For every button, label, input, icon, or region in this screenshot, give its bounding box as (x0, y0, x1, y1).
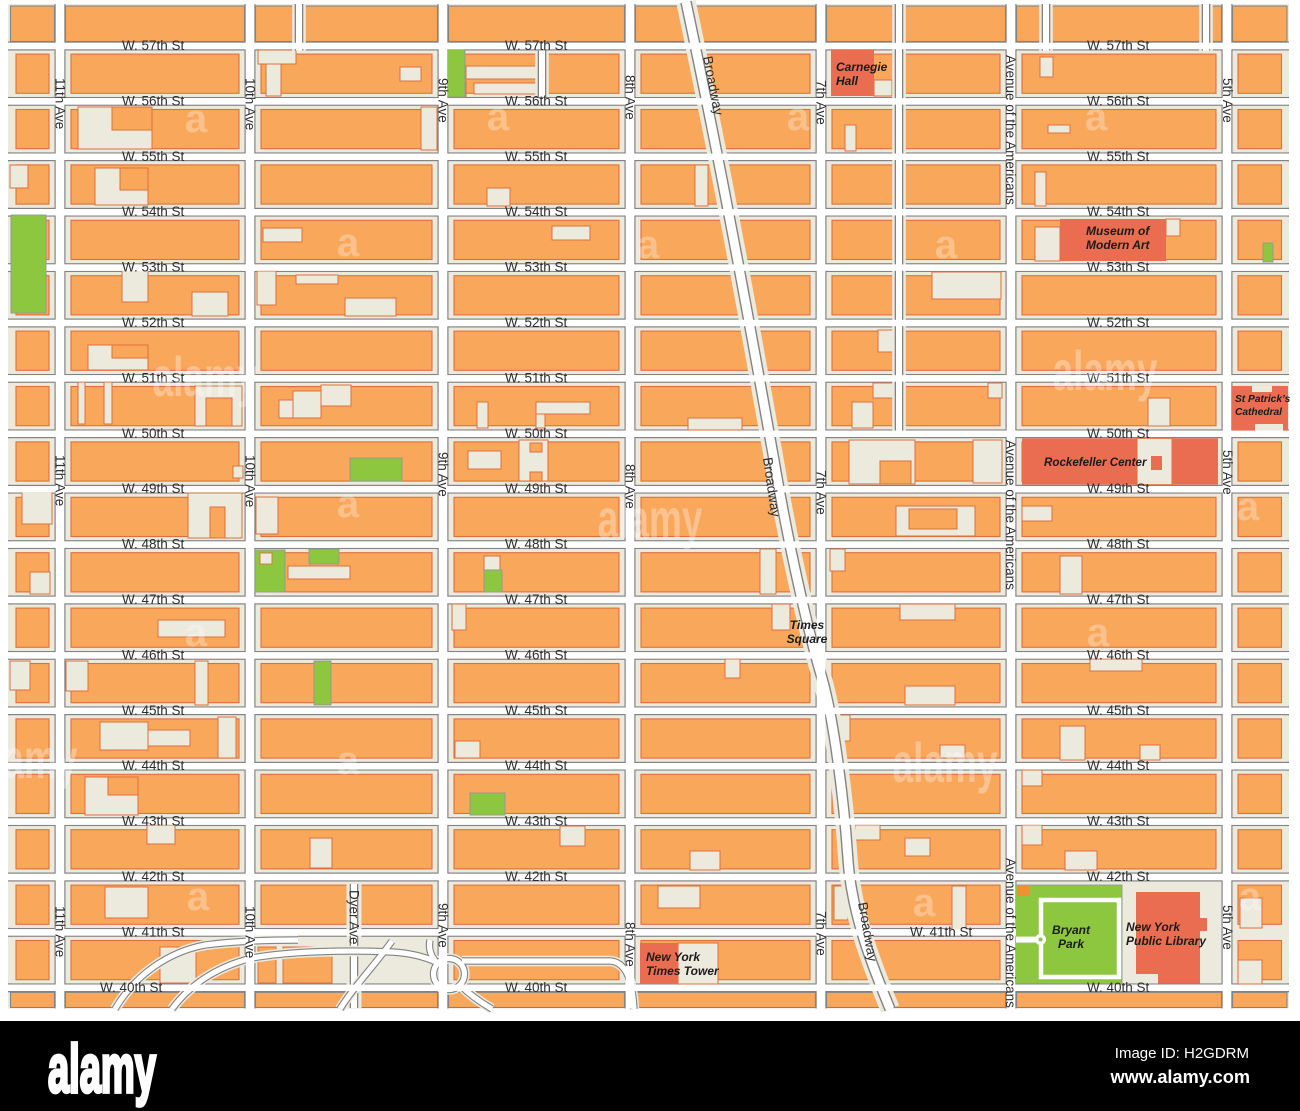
svg-text:W. 51th St: W. 51th St (505, 370, 568, 385)
svg-text:W. 52th St: W. 52th St (122, 315, 185, 330)
svg-text:W. 42th St: W. 42th St (505, 869, 568, 884)
svg-text:Dyer Ave: Dyer Ave (347, 890, 362, 945)
svg-text:alamy: alamy (48, 1030, 156, 1107)
svg-text:W. 53th St: W. 53th St (122, 260, 185, 275)
svg-text:W. 50th St: W. 50th St (122, 426, 185, 441)
svg-text:Bryant: Bryant (1052, 923, 1091, 937)
svg-text:W. 46th St: W. 46th St (505, 647, 568, 662)
svg-text:W. 48th St: W. 48th St (505, 537, 568, 552)
svg-text:W. 57th St: W. 57th St (122, 38, 185, 53)
svg-text:W. 50th St: W. 50th St (505, 426, 568, 441)
svg-text:W. 55th St: W. 55th St (505, 149, 568, 164)
svg-text:9th Ave: 9th Ave (436, 903, 451, 948)
svg-text:W. 56th St: W. 56th St (122, 93, 185, 108)
svg-text:W. 54th St: W. 54th St (1087, 204, 1150, 219)
svg-text:W. 44th St: W. 44th St (505, 758, 568, 773)
svg-text:11th Ave: 11th Ave (53, 455, 68, 506)
svg-text:Square: Square (787, 632, 828, 646)
svg-text:W. 52th St: W. 52th St (505, 315, 568, 330)
svg-text:Cathedral: Cathedral (1235, 407, 1282, 418)
svg-text:Times: Times (790, 618, 825, 632)
svg-text:Avenue of the Americans: Avenue of the Americans (1003, 55, 1018, 205)
svg-text:W. 46th St: W. 46th St (122, 647, 185, 662)
svg-text:W. 40th St: W. 40th St (505, 980, 568, 995)
svg-text:W. 45th St: W. 45th St (122, 703, 185, 718)
svg-text:Avenue of the Americans: Avenue of the Americans (1003, 440, 1018, 590)
svg-text:8th Ave: 8th Ave (623, 922, 638, 967)
svg-text:Image ID: H2GDRM: Image ID: H2GDRM (1115, 1045, 1249, 1062)
svg-text:W. 53th St: W. 53th St (505, 260, 568, 275)
svg-text:9th Ave: 9th Ave (436, 78, 451, 123)
svg-text:a: a (487, 95, 510, 139)
svg-text:7th Ave: 7th Ave (814, 470, 829, 515)
svg-text:W. 54th St: W. 54th St (505, 204, 568, 219)
svg-text:9th Ave: 9th Ave (436, 452, 451, 497)
svg-text:Hall: Hall (836, 74, 859, 88)
svg-text:a: a (913, 881, 936, 925)
svg-text:W. 41th St: W. 41th St (910, 924, 973, 939)
svg-text:Times Tower: Times Tower (646, 964, 720, 978)
svg-text:7th Ave: 7th Ave (814, 80, 829, 125)
svg-text:5th Ave: 5th Ave (1220, 78, 1235, 123)
svg-text:W. 49th St: W. 49th St (122, 481, 185, 496)
svg-text:New York: New York (1126, 920, 1181, 934)
svg-text:alamy: alamy (598, 488, 703, 551)
svg-text:W. 55th St: W. 55th St (122, 149, 185, 164)
svg-text:10th Ave: 10th Ave (243, 455, 258, 507)
svg-text:11th Ave: 11th Ave (53, 78, 68, 129)
svg-text:alamy: alamy (153, 346, 258, 409)
svg-text:Carnegie: Carnegie (836, 60, 888, 74)
svg-text:W. 54th St: W. 54th St (122, 204, 185, 219)
svg-text:W. 44th St: W. 44th St (122, 758, 185, 773)
svg-text:a: a (935, 223, 958, 267)
svg-text:W. 50th St: W. 50th St (1087, 426, 1150, 441)
svg-text:W. 49th St: W. 49th St (505, 481, 568, 496)
svg-text:a: a (185, 97, 208, 141)
svg-text:a: a (185, 611, 208, 655)
svg-text:a: a (1237, 485, 1260, 529)
svg-text:W. 45th St: W. 45th St (1087, 703, 1150, 718)
svg-text:10th Ave: 10th Ave (243, 906, 258, 958)
svg-text:Park: Park (1058, 937, 1085, 951)
svg-text:a: a (1085, 95, 1108, 139)
svg-text:a: a (1239, 875, 1262, 919)
svg-text:alamy: alamy (0, 728, 78, 791)
svg-text:8th Ave: 8th Ave (623, 75, 638, 120)
svg-text:www.alamy.com: www.alamy.com (1110, 1067, 1251, 1087)
svg-text:7th Ave: 7th Ave (814, 911, 829, 956)
svg-text:W. 42th St: W. 42th St (1087, 869, 1150, 884)
svg-text:alamy: alamy (1053, 340, 1158, 403)
svg-text:a: a (337, 221, 360, 265)
svg-text:a: a (337, 482, 360, 526)
svg-text:10th Ave: 10th Ave (243, 78, 258, 130)
svg-text:5th Ave: 5th Ave (1220, 905, 1235, 950)
svg-text:W. 55th St: W. 55th St (1087, 149, 1150, 164)
svg-text:W. 40th St: W. 40th St (100, 980, 163, 995)
svg-text:a: a (1087, 611, 1110, 655)
svg-text:W. 47th St: W. 47th St (1087, 592, 1150, 607)
svg-text:W. 43th St: W. 43th St (122, 814, 185, 829)
svg-text:a: a (337, 739, 360, 783)
svg-text:a: a (787, 95, 810, 139)
svg-text:W. 40th St: W. 40th St (1087, 980, 1150, 995)
svg-text:W. 42th St: W. 42th St (122, 869, 185, 884)
svg-text:W. 56th St: W. 56th St (505, 93, 568, 108)
svg-text:Public Library: Public Library (1126, 934, 1207, 948)
svg-text:W. 57th St: W. 57th St (505, 38, 568, 53)
svg-text:W. 57th St: W. 57th St (1087, 38, 1150, 53)
svg-text:5th Ave: 5th Ave (1220, 450, 1235, 495)
svg-text:W. 45th St: W. 45th St (505, 703, 568, 718)
svg-text:Avenue of the Americans: Avenue of the Americans (1003, 858, 1018, 1008)
svg-text:W. 43th St: W. 43th St (505, 814, 568, 829)
svg-text:W. 52th St: W. 52th St (1087, 315, 1150, 330)
svg-text:Rockefeller Center: Rockefeller Center (1044, 456, 1148, 469)
svg-text:alamy: alamy (893, 732, 998, 795)
svg-text:W. 47th St: W. 47th St (122, 592, 185, 607)
svg-text:Museum of: Museum of (1086, 224, 1150, 238)
svg-text:St Patrick’s: St Patrick’s (1235, 394, 1291, 405)
svg-text:W. 41th St: W. 41th St (122, 924, 185, 939)
svg-text:W. 44th St: W. 44th St (1087, 758, 1150, 773)
svg-text:Modern Art: Modern Art (1086, 238, 1151, 252)
svg-text:W. 48th St: W. 48th St (122, 537, 185, 552)
svg-text:New York: New York (646, 950, 701, 964)
svg-text:11th Ave: 11th Ave (53, 906, 68, 957)
svg-text:W. 48th St: W. 48th St (1087, 537, 1150, 552)
svg-text:W. 43th St: W. 43th St (1087, 814, 1150, 829)
svg-text:W. 47th St: W. 47th St (505, 592, 568, 607)
svg-text:a: a (637, 223, 660, 267)
svg-text:a: a (187, 875, 210, 919)
svg-text:W. 53th St: W. 53th St (1087, 260, 1150, 275)
svg-text:W. 49th St: W. 49th St (1087, 481, 1150, 496)
